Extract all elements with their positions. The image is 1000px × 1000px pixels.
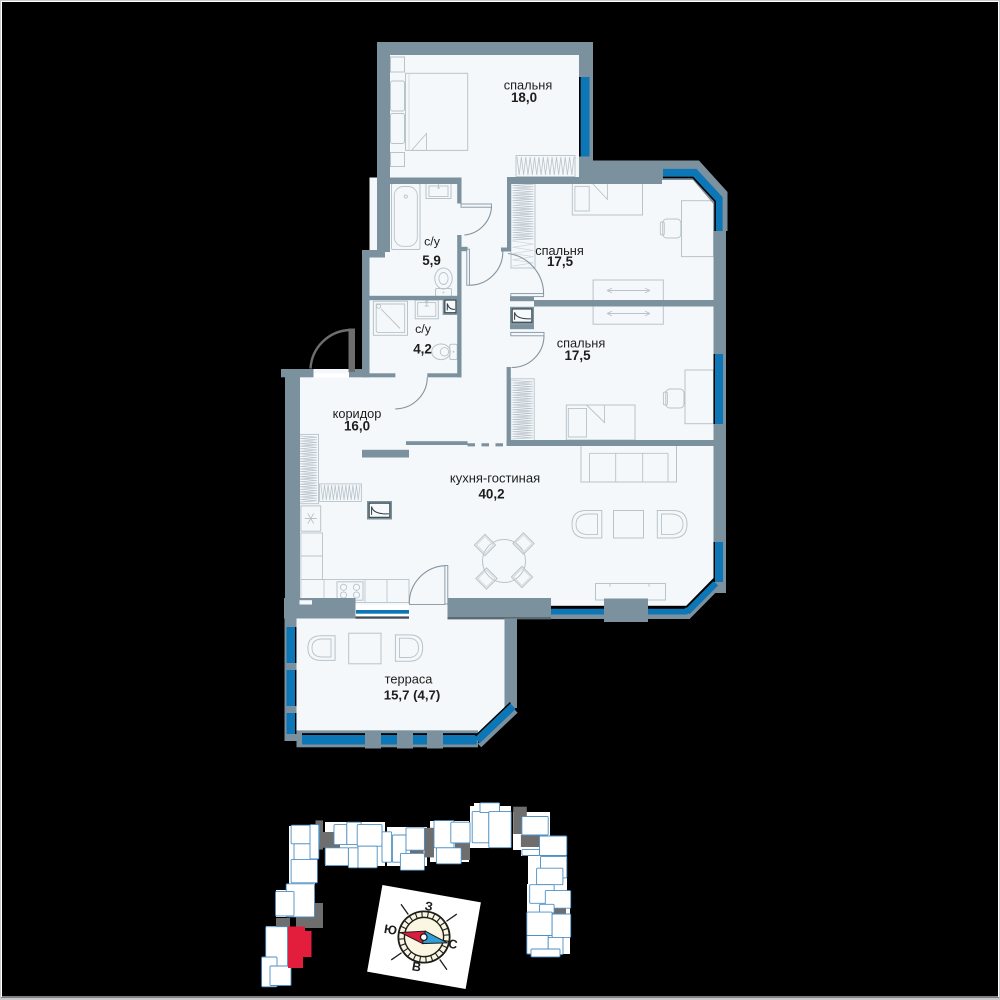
svg-text:18,0: 18,0 — [511, 90, 537, 105]
svg-text:40,2: 40,2 — [478, 486, 504, 501]
svg-text:15,7 (4,7): 15,7 (4,7) — [384, 687, 440, 702]
svg-text:5,9: 5,9 — [422, 253, 441, 268]
svg-text:кухня-гостиная: кухня-гостиная — [450, 470, 540, 485]
svg-text:терраса: терраса — [385, 671, 434, 686]
svg-text:Ю: Ю — [383, 922, 398, 938]
svg-text:17,5: 17,5 — [564, 348, 591, 363]
svg-text:16,0: 16,0 — [344, 419, 370, 434]
svg-text:с/у: с/у — [424, 235, 441, 249]
svg-text:4,2: 4,2 — [413, 342, 432, 357]
svg-text:17,5: 17,5 — [547, 254, 574, 269]
svg-text:с/у: с/у — [415, 322, 432, 336]
